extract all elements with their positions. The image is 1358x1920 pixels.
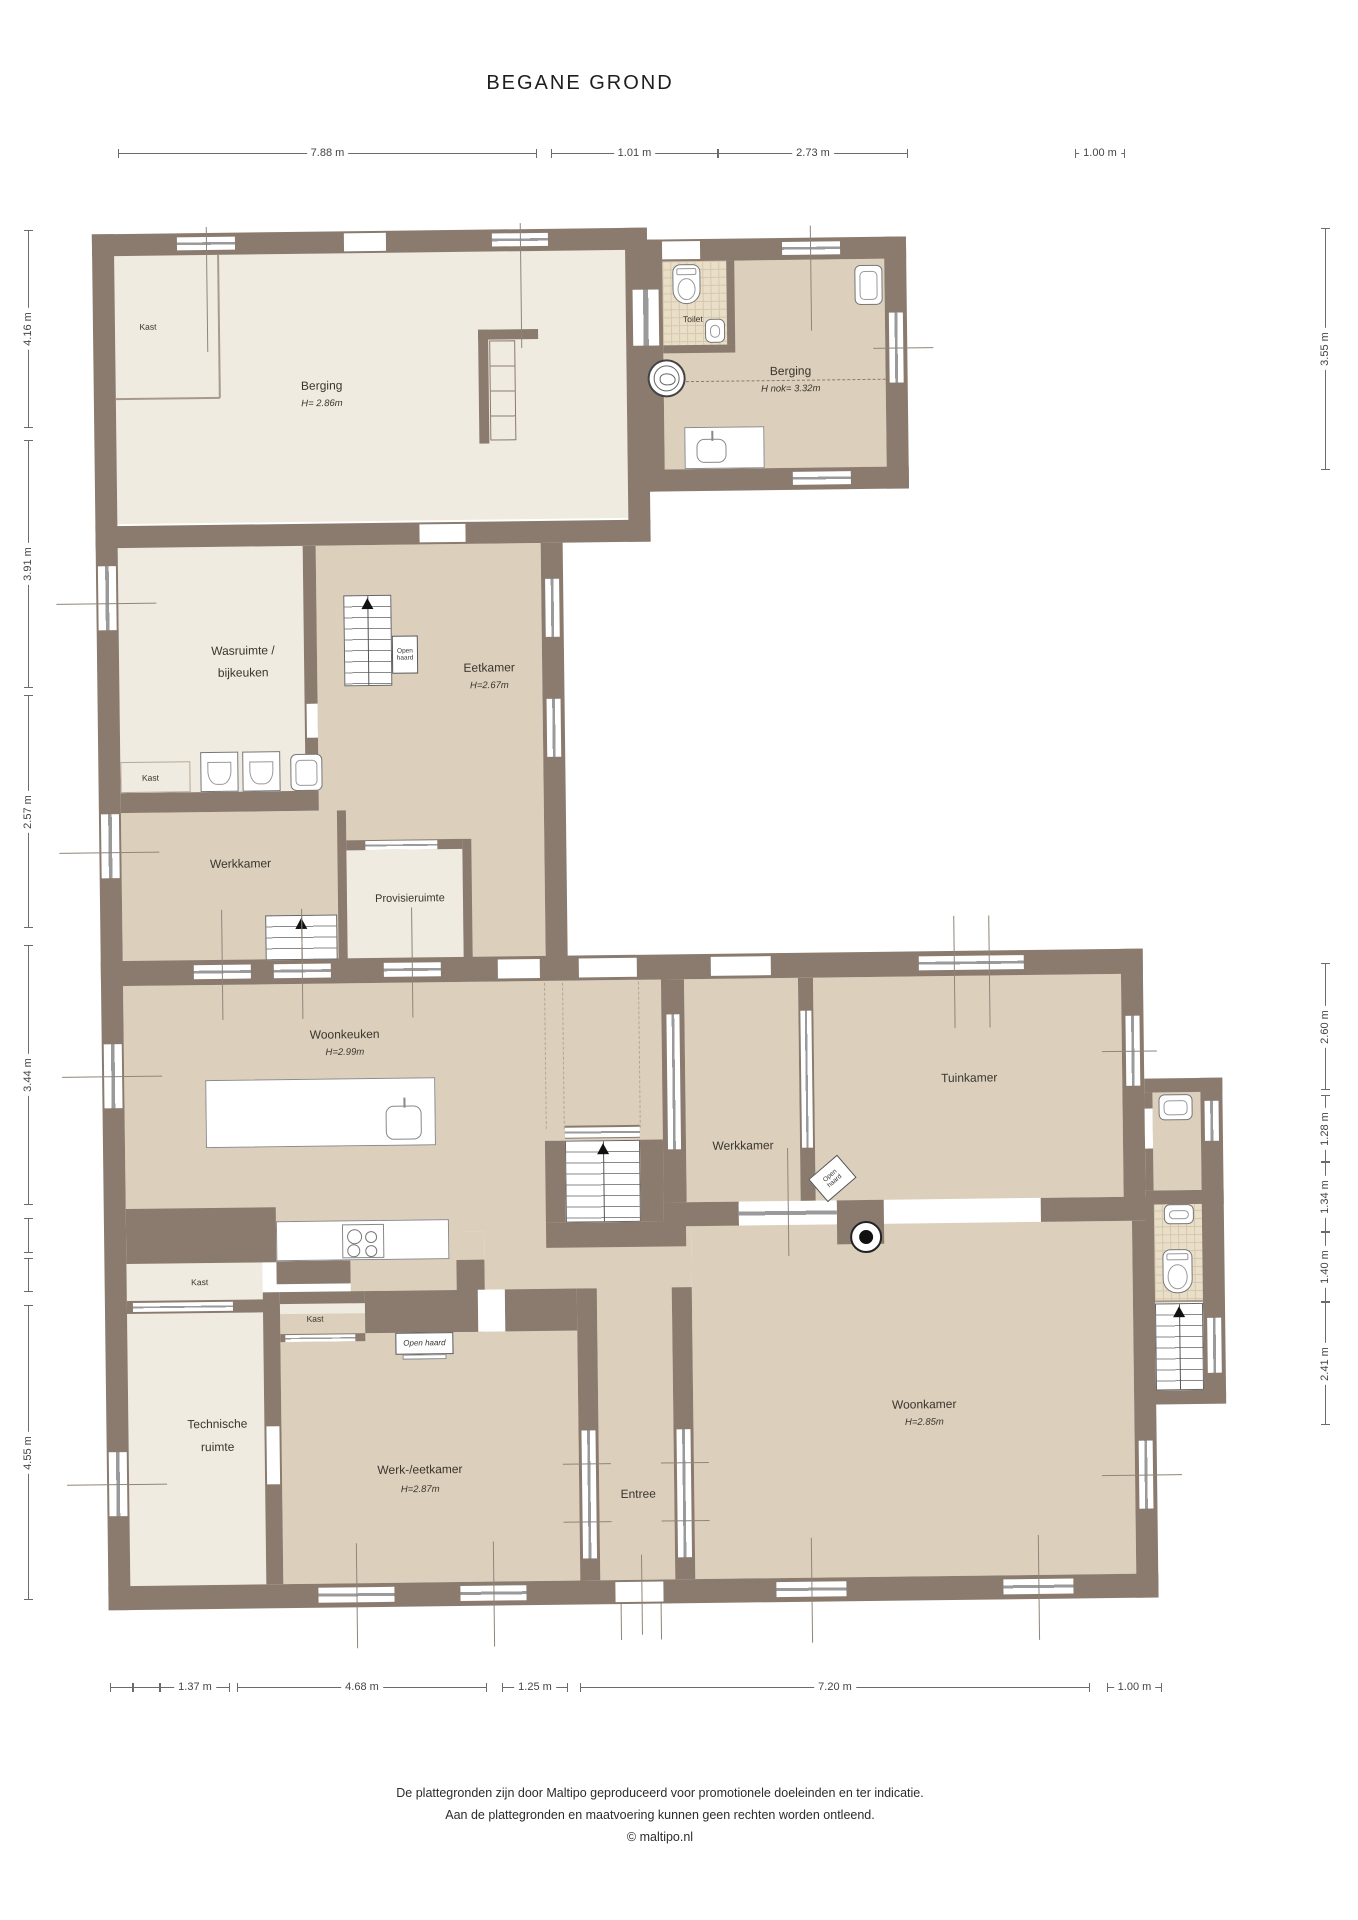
window xyxy=(919,955,1024,970)
room-height-woonkamer: H=2.85m xyxy=(905,1417,944,1428)
wall xyxy=(640,1139,664,1221)
cooktop-icon xyxy=(342,1224,384,1259)
dimension-right-4: 1.34 m xyxy=(1318,1162,1332,1232)
room-label-eetkamer: Eetkamer xyxy=(463,660,515,675)
window xyxy=(133,1302,233,1312)
room-label-technische-1: Technische xyxy=(187,1417,247,1432)
room-height-woonkeuken: H=2.99m xyxy=(325,1047,364,1058)
dimension-top-1: 7.88 m xyxy=(118,146,537,160)
footer-line-3: © maltipo.nl xyxy=(0,1826,1320,1848)
wall xyxy=(121,791,319,813)
dimension-left-5: 4.55 m xyxy=(21,1305,35,1600)
sink-icon xyxy=(1158,1094,1192,1120)
washing-machine-icon xyxy=(242,751,280,791)
shelf-unit xyxy=(489,340,516,440)
window xyxy=(285,1334,355,1342)
window xyxy=(1204,1101,1218,1141)
room-label-werkkamer-boven: Werkkamer xyxy=(210,856,271,871)
window xyxy=(547,699,562,757)
door-opening xyxy=(1145,1109,1153,1149)
wall xyxy=(276,1260,350,1284)
room-label-wasruimte-2: bijkeuken xyxy=(218,665,269,680)
room-height-eetkamer: H=2.67m xyxy=(470,680,509,691)
toilet-icon xyxy=(672,264,700,304)
wall xyxy=(95,520,650,549)
sink-icon xyxy=(385,1105,421,1139)
footer-line-2: Aan de plattegronden en maatvoering kunn… xyxy=(0,1804,1320,1826)
wall xyxy=(505,1289,578,1332)
dimension-right-3: 1.28 m xyxy=(1318,1095,1332,1162)
dimension-right-2: 2.60 m xyxy=(1318,963,1332,1090)
room-werkkamer-midden-floor xyxy=(684,978,801,1202)
door-opening xyxy=(307,704,318,738)
door-opening xyxy=(266,1426,280,1484)
fireplace: Open haard xyxy=(392,635,418,673)
window xyxy=(545,579,560,637)
room-label-berging-left: Berging xyxy=(301,378,343,393)
hearth-ledge xyxy=(403,1354,447,1360)
wall xyxy=(663,345,735,354)
window xyxy=(633,289,660,345)
room-height-berging-left: H= 2.86m xyxy=(301,398,343,410)
wall xyxy=(726,261,735,345)
dimension-top-4: 1.00 m xyxy=(1075,146,1125,160)
fireplace: Open haard xyxy=(395,1332,453,1355)
closet-label: Kast xyxy=(142,773,159,783)
dimension-bottom-small-1 xyxy=(110,1680,133,1694)
room-label-provisieruimte: Provisieruimte xyxy=(375,892,445,905)
wall xyxy=(365,1290,479,1333)
wall xyxy=(337,810,348,961)
window xyxy=(565,1127,640,1138)
dimension-left-small-2 xyxy=(21,1258,35,1292)
floor-plan-drawing: Open haard Open haard Open haard xyxy=(0,0,1358,1920)
dimension-right-6: 2.41 m xyxy=(1318,1302,1332,1425)
wall xyxy=(545,1141,566,1223)
room-height-berging-right: H nok= 3.32m xyxy=(761,383,821,395)
dimension-bottom-4: 7.20 m xyxy=(580,1680,1090,1694)
door-post-line xyxy=(621,1604,622,1640)
room-technische-floor xyxy=(127,1312,266,1586)
room-height-werk-eetkamer: H=2.87m xyxy=(401,1484,440,1495)
dimension-left-1: 4.16 m xyxy=(21,230,35,428)
stairs xyxy=(1155,1303,1204,1391)
dimension-right-1: 3.55 m xyxy=(1318,228,1332,470)
closet-label: Kast xyxy=(307,1314,324,1324)
window xyxy=(793,471,851,485)
room-label-wasruimte-1: Wasruimte / xyxy=(211,643,275,658)
toilet-icon xyxy=(1162,1249,1193,1293)
door-opening xyxy=(662,241,700,259)
wall xyxy=(546,1221,686,1248)
wall xyxy=(643,466,909,491)
wall xyxy=(478,330,489,444)
dimension-left-4: 3.44 m xyxy=(21,945,35,1205)
room-provisieruimte-floor xyxy=(346,849,463,961)
glass-door xyxy=(581,1430,597,1558)
sink-icon xyxy=(290,754,322,791)
room-label-woonkeuken: Woonkeuken xyxy=(310,1027,380,1042)
footer-disclaimer: De plattegronden zijn door Maltipo gepro… xyxy=(0,1782,1320,1848)
window xyxy=(1207,1318,1222,1373)
sink-icon xyxy=(854,265,882,305)
dimension-bottom-small-2 xyxy=(133,1680,160,1694)
dimension-left-small-1 xyxy=(21,1218,35,1253)
wall xyxy=(462,839,472,960)
glass-door xyxy=(676,1429,692,1557)
closet-label: Kast xyxy=(191,1277,208,1287)
floor-plan-page: BEGANE GROND xyxy=(0,0,1358,1920)
glass-door xyxy=(666,1014,681,1149)
room-label-woonkamer: Woonkamer xyxy=(892,1397,957,1412)
door-opening xyxy=(344,233,386,252)
stove-icon xyxy=(850,1221,882,1253)
stairs xyxy=(565,1140,641,1223)
front-door-opening xyxy=(615,1582,663,1603)
fireplace-label: Open haard xyxy=(403,1339,445,1349)
sink-icon xyxy=(705,319,725,343)
door-post-line xyxy=(661,1604,662,1640)
room-label-toilet: Toilet xyxy=(683,314,703,324)
door-opening xyxy=(419,524,465,543)
room-tuinkamer-floor xyxy=(813,974,1124,1201)
dimension-bottom-2: 4.68 m xyxy=(237,1680,487,1694)
room-label-berging-right: Berging xyxy=(770,364,812,379)
room-label-werk-eetkamer: Werk-/eetkamer xyxy=(377,1462,462,1477)
dimension-bottom-5: 1.00 m xyxy=(1107,1680,1162,1694)
dimension-left-2: 3.91 m xyxy=(21,440,35,688)
room-label-tuinkamer: Tuinkamer xyxy=(941,1070,997,1085)
footer-line-1: De plattegronden zijn door Maltipo gepro… xyxy=(0,1782,1320,1804)
wall xyxy=(1041,1197,1154,1222)
wall xyxy=(1146,1190,1224,1205)
window xyxy=(365,840,437,850)
wall xyxy=(280,1291,365,1304)
stairs xyxy=(343,595,392,687)
room-label-entree: Entree xyxy=(620,1487,656,1501)
door-opening xyxy=(711,956,771,976)
washing-machine-icon xyxy=(200,752,238,792)
room-label-werkkamer-midden: Werkkamer xyxy=(712,1138,773,1153)
window xyxy=(98,566,117,630)
wall xyxy=(1148,1390,1226,1405)
dimension-bottom-1: 1.37 m xyxy=(160,1680,230,1694)
door-opening xyxy=(579,958,637,978)
wall xyxy=(126,1207,277,1264)
room-berging-left-floor xyxy=(114,250,628,524)
window xyxy=(101,814,120,878)
room-label-technische-2: ruimte xyxy=(201,1440,235,1454)
room-entree-floor xyxy=(597,1287,676,1580)
door-opening xyxy=(498,959,540,979)
glass-door xyxy=(800,1011,813,1148)
sink-icon xyxy=(696,439,726,463)
door-opening xyxy=(478,1289,506,1331)
sink-icon xyxy=(1164,1204,1194,1224)
dimension-top-3: 2.73 m xyxy=(718,146,908,160)
closet-label: Kast xyxy=(139,322,156,332)
dimension-top-2: 1.01 m xyxy=(551,146,718,160)
dimension-left-3: 2.57 m xyxy=(21,695,35,928)
dimension-right-5: 1.40 m xyxy=(1318,1232,1332,1302)
dimension-bottom-3: 1.25 m xyxy=(502,1680,568,1694)
fireplace-label: Open haard xyxy=(394,647,416,662)
